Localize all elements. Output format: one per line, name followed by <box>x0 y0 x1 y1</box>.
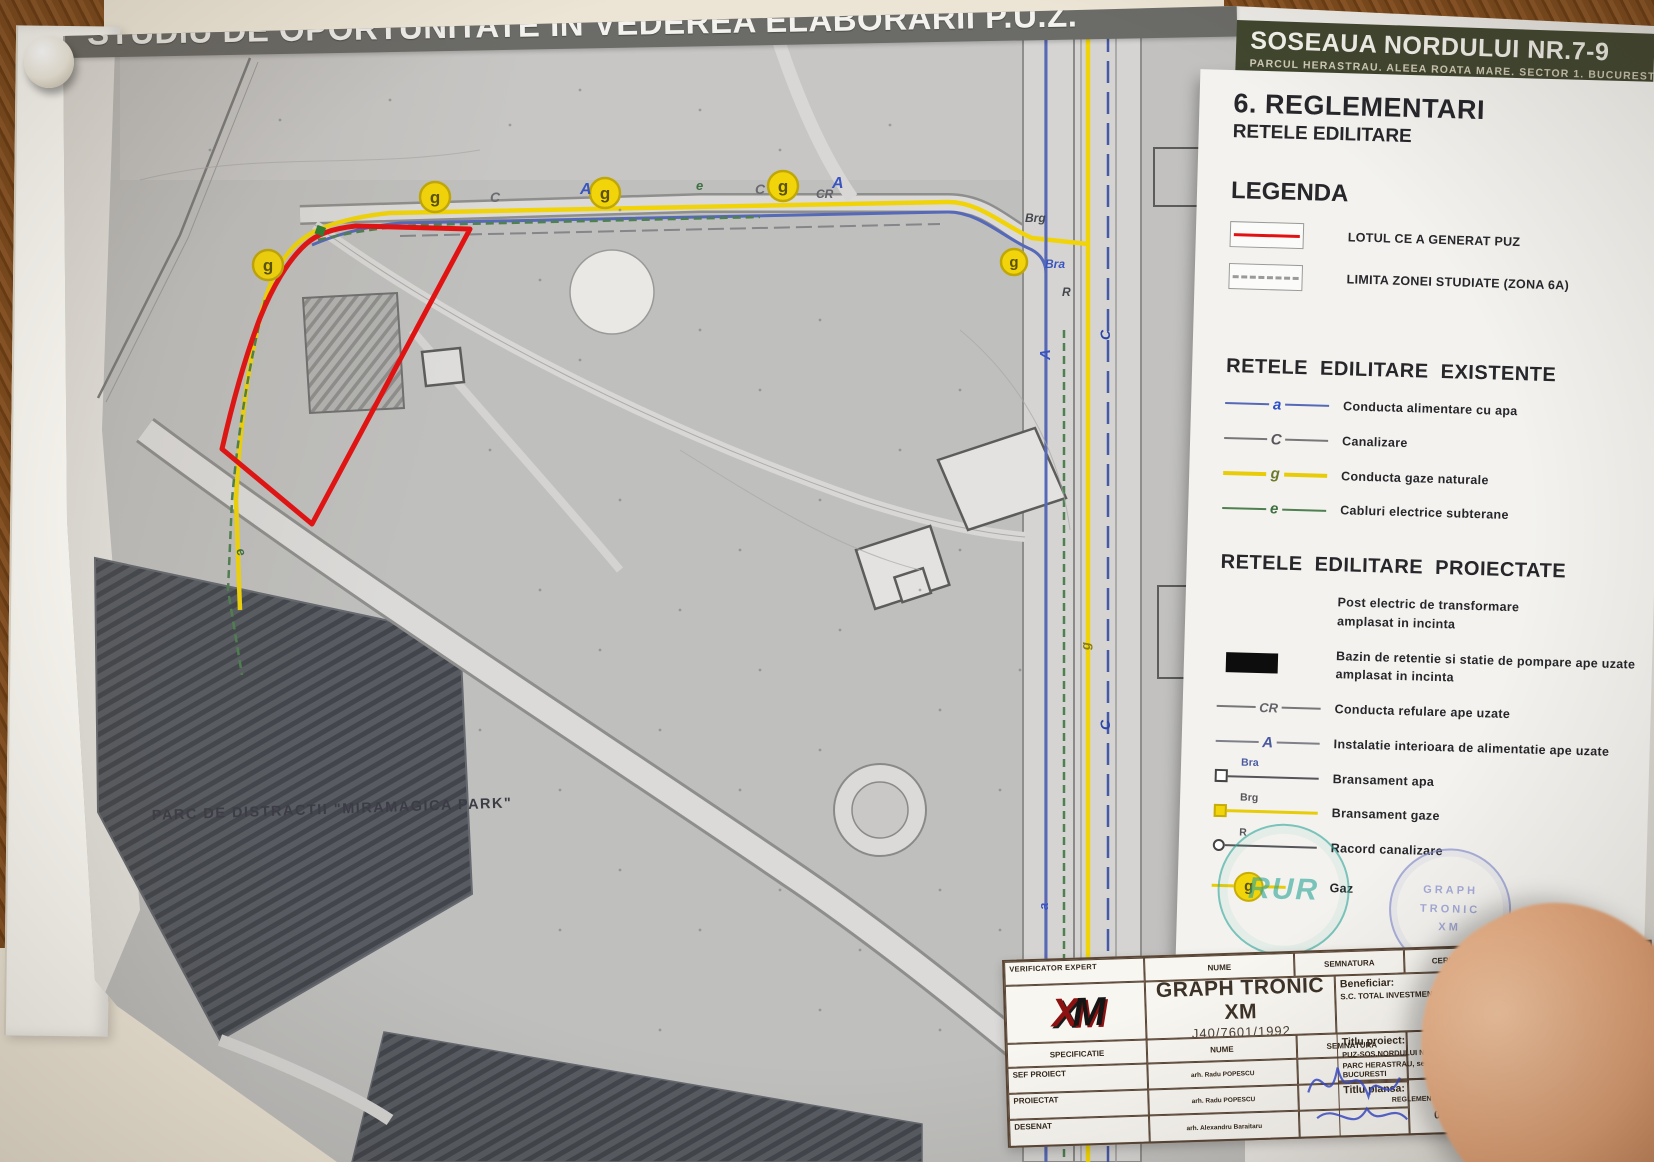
circle-marker <box>1213 839 1225 851</box>
legend-item-bazin: Bazin de retentie si statie de pompare a… <box>1217 643 1638 692</box>
svg-text:A: A <box>579 181 592 198</box>
company-name: GRAPH TRONIC XM <box>1146 976 1335 1027</box>
legend-item-bransament-gaze: Brg Bransament gaze <box>1214 801 1634 831</box>
svg-text:g: g <box>430 188 440 207</box>
svg-text:g: g <box>600 184 610 203</box>
legend-item-apa: a Conducta alimentare cu apa <box>1225 394 1645 424</box>
legend-item-electrice: e Cabluri electrice subterane <box>1222 498 1642 528</box>
legend-item-post-electric: Post electric de transformareamplasat in… <box>1219 590 1640 639</box>
photo-of-puz-plan: g g g g g A A C C e CR A C C C g a e <box>0 0 1654 1162</box>
legend-item-canalizare: C Canalizare <box>1224 429 1644 459</box>
lot-building <box>303 293 404 413</box>
black-rect-swatch <box>1226 652 1279 673</box>
svg-text:g: g <box>778 177 788 196</box>
svg-text:R: R <box>1062 285 1071 299</box>
legend-item-instalatie: A Instalatie interioara de alimentatie a… <box>1215 732 1635 762</box>
square-marker <box>1215 769 1228 782</box>
yellow-square-marker <box>1214 804 1227 817</box>
legend-panel: 6. REGLEMENTARI RETELE EDILITARE LEGENDA… <box>1175 69 1654 984</box>
legend-item-bransament-apa: Bra Bransament apa <box>1214 766 1634 796</box>
xm-logo: XM <box>1051 992 1100 1033</box>
legend-item-racord: R Racord canalizare <box>1213 836 1633 866</box>
svg-text:Brg: Brg <box>1025 211 1046 225</box>
legend-item-limita: LIMITA ZONEI STUDIATE (ZONA 6A) <box>1228 263 1649 301</box>
svg-text:g: g <box>1009 254 1018 271</box>
legenda-title: LEGENDA <box>1231 177 1652 217</box>
legend-item-gaze: g Conducta gaze naturale <box>1223 463 1643 493</box>
existente-title: RETELE EDILITARE EXISTENTE <box>1226 355 1646 390</box>
svg-text:e: e <box>696 178 703 193</box>
legend-item-lot: LOTUL CE A GENERAT PUZ <box>1230 221 1651 259</box>
svg-text:Bra: Bra <box>1045 257 1065 271</box>
legend-item-cr: CR Conducta refulare ape uzate <box>1216 697 1636 727</box>
svg-text:C: C <box>1097 329 1113 340</box>
red-line-swatch <box>1230 221 1305 249</box>
svg-text:CR: CR <box>816 187 834 201</box>
svg-text:C: C <box>490 189 501 205</box>
svg-text:g: g <box>1078 642 1093 651</box>
gas-circle-marker: g <box>1233 871 1264 902</box>
pushpin-icon <box>24 36 74 88</box>
proiectate-title: RETELE EDILITARE PROIECTATE <box>1220 551 1640 586</box>
verificator-label: VERIFICATOR EXPERT <box>1009 962 1097 974</box>
svg-text:g: g <box>263 256 273 275</box>
dashed-line-swatch <box>1228 263 1303 291</box>
svg-text:C: C <box>1097 719 1113 730</box>
svg-text:C: C <box>755 181 766 197</box>
svg-text:A: A <box>1037 349 1054 361</box>
svg-text:a: a <box>1036 903 1051 910</box>
